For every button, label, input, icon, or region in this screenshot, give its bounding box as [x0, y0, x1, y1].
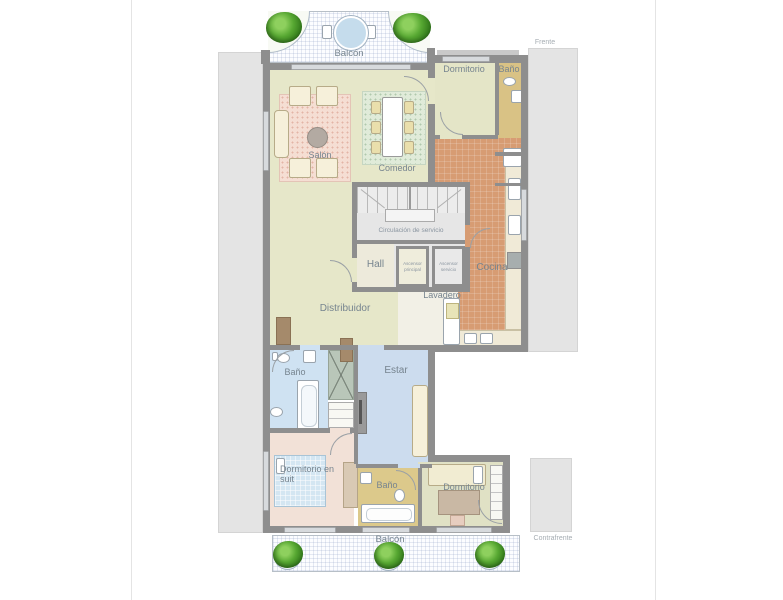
wall-service-closet-bottom	[495, 183, 523, 186]
dining-chair	[371, 101, 381, 114]
door-opening	[440, 135, 462, 139]
orientation-label-back: Contrafrente	[510, 535, 596, 543]
orientation-label-front: Frente	[512, 39, 578, 47]
cooktop	[508, 178, 521, 200]
bathtub-inner	[301, 385, 317, 427]
balcony-chair	[322, 25, 332, 39]
armchair	[316, 158, 338, 178]
oven	[464, 333, 477, 344]
door-opening	[398, 464, 420, 468]
room-label-service-bedroom: Dormitorio	[430, 64, 498, 74]
dining-chair	[371, 121, 381, 134]
door-opening	[428, 78, 435, 104]
room-label-balcony-back: Balcón	[300, 535, 480, 546]
hall-closet	[328, 402, 354, 428]
toilet	[394, 489, 405, 502]
bathtub-inner	[366, 508, 412, 521]
window	[292, 65, 410, 69]
wall-mid	[263, 345, 434, 350]
window	[363, 528, 409, 532]
wall-section-h	[428, 455, 510, 462]
wall-notch-h	[432, 345, 528, 352]
window	[437, 528, 491, 532]
desk-chair	[450, 515, 465, 526]
room-label-main-elevator: Ascensor principal	[399, 261, 426, 272]
door-opening	[300, 345, 320, 350]
sink	[303, 350, 316, 363]
wall-service-bath-bottom	[495, 152, 523, 156]
window	[264, 452, 268, 510]
window	[443, 57, 489, 61]
room-label-bathroom2: Baño	[364, 480, 410, 490]
sofa	[274, 110, 289, 158]
room-label-service-circulation: Circulación de servicio	[357, 227, 465, 234]
room-label-bedroom2: Dormitorio	[432, 482, 496, 492]
wall-right-bottom	[503, 455, 510, 533]
elevator-service: Ascensor servicio	[432, 246, 465, 287]
room-label-service-bathroom: Baño	[490, 64, 528, 74]
dishwasher	[480, 333, 493, 344]
daybed	[412, 385, 428, 457]
bidet	[270, 407, 283, 417]
wall	[516, 55, 528, 63]
dining-chair	[404, 121, 414, 134]
floor-plan: Balcón Frente	[0, 0, 783, 600]
kitchen-counter	[505, 148, 522, 330]
wall-bath2-right	[418, 468, 422, 526]
wall-estar-left	[354, 348, 358, 464]
door-opening	[358, 345, 384, 350]
stair-core: Circulación de servicio Hall Ascensor pr…	[352, 182, 470, 292]
water-heater	[446, 303, 459, 319]
desk	[438, 490, 480, 515]
stair-landing	[385, 209, 435, 222]
armchair	[289, 158, 311, 178]
room-label-balcony-front: Balcón	[268, 49, 430, 60]
room-label-master-bedroom: Dormitorio en suit	[280, 464, 338, 485]
fridge	[503, 148, 522, 167]
room-label-dining: Comedor	[366, 163, 428, 173]
coffee-table	[307, 127, 328, 148]
armchair	[289, 86, 311, 106]
neighbor-building-left	[218, 52, 263, 533]
window	[264, 112, 268, 170]
room-label-living: Salón	[294, 150, 346, 160]
room-label-family-room: Estar	[372, 365, 420, 377]
toilet	[503, 77, 516, 86]
door-opening	[330, 428, 350, 433]
wardrobe	[343, 462, 358, 508]
window	[522, 190, 526, 240]
dining-chair	[404, 101, 414, 114]
dining-chair	[404, 141, 414, 154]
dining-table	[382, 97, 403, 157]
neighbor-building-right-top	[528, 48, 578, 352]
wall-notch-v	[428, 345, 435, 462]
console-table	[276, 317, 291, 345]
tv-screen	[359, 400, 362, 424]
neighbor-building-right-bottom	[530, 458, 572, 532]
balcony-table	[334, 16, 368, 50]
kitchen-door-opening	[465, 225, 470, 247]
photo-border-right	[655, 0, 656, 600]
room-label-bathroom-main: Baño	[272, 367, 318, 377]
hall-door-opening	[352, 258, 357, 282]
window	[285, 528, 335, 532]
room-label-laundry: Lavadero	[408, 290, 476, 300]
photo-border-left	[131, 0, 132, 600]
dining-chair	[371, 141, 381, 154]
room-label-kitchen: Cocina	[462, 262, 522, 274]
room-label-hall: Hall	[357, 259, 394, 271]
armchair	[316, 86, 338, 106]
room-label-service-elevator: Ascensor servicio	[435, 261, 462, 272]
room-label-distributor: Distribuidor	[300, 303, 390, 315]
console-table	[340, 338, 353, 362]
kitchen-sink	[508, 215, 521, 235]
wall	[261, 50, 270, 64]
elevator-main: Ascensor principal	[396, 246, 429, 287]
